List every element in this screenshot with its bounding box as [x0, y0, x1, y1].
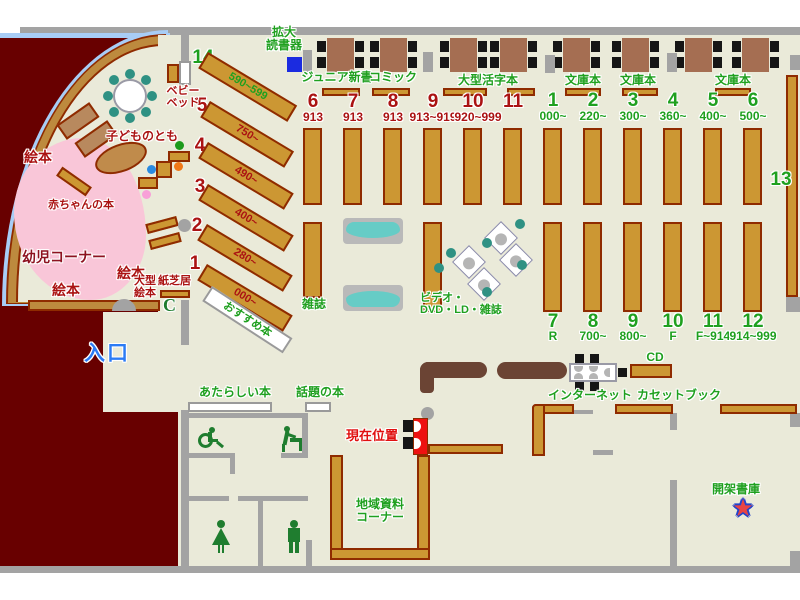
- stool: [434, 263, 444, 273]
- shelf-number: 1: [541, 91, 565, 111]
- shelf-number: 7: [341, 92, 365, 112]
- shelf-column: [543, 222, 562, 312]
- counter-leg: [420, 362, 434, 393]
- chair: [528, 57, 537, 68]
- chair: [618, 368, 627, 377]
- chair: [575, 354, 584, 363]
- wall-stacks-bottom: [670, 480, 677, 567]
- chair: [590, 354, 599, 363]
- shelf-column: [663, 128, 682, 205]
- shelf-number-13: 13: [764, 170, 798, 190]
- pillar: [178, 219, 191, 232]
- chair: [612, 41, 621, 52]
- local-shelf-left: [330, 455, 343, 560]
- partition: [667, 53, 677, 72]
- chair: [770, 57, 779, 68]
- av-label: ビデオ・ DVD・LD・雑誌: [420, 293, 506, 316]
- wall-right-c: [790, 413, 800, 427]
- seat: [604, 368, 610, 377]
- chair: [440, 57, 449, 68]
- chair: [490, 41, 499, 52]
- shelf-number: 8: [381, 92, 405, 112]
- chair: [675, 41, 684, 52]
- cd-label: CD: [640, 351, 670, 364]
- man-icon: [285, 520, 303, 554]
- magnifier-reader-label: 拡大 読書器: [258, 26, 310, 51]
- chair: [355, 57, 364, 68]
- shelf-range: 920~999: [450, 111, 506, 124]
- chair: [478, 41, 487, 52]
- chair: [317, 41, 326, 52]
- shelf-column: [663, 222, 682, 312]
- wall-av-room-b: [593, 450, 613, 455]
- wall-toilet-right-lower: [306, 540, 312, 567]
- play-step: [156, 161, 172, 178]
- chair: [440, 41, 449, 52]
- wall-toilet-top: [189, 413, 307, 418]
- shelf-number: 6: [301, 92, 325, 112]
- shelf-number: 9: [421, 92, 445, 112]
- magazine-label: 雑誌: [292, 298, 336, 311]
- reading-table: [685, 38, 712, 72]
- baby-changing-icon: [280, 426, 304, 452]
- reading-table: [380, 38, 407, 72]
- kids-chair: [103, 91, 113, 101]
- shelf-column: [623, 128, 642, 205]
- kids-chair: [141, 75, 151, 85]
- stacks-star-icon: ★: [728, 494, 758, 524]
- stool: [482, 238, 492, 248]
- shelf-column: [383, 128, 402, 205]
- chair: [317, 57, 326, 68]
- library-floor-map: 拡大 読書器 ジュニア新書 コミック 大型活字本 文庫本 文庫本 文庫本 6 7…: [0, 0, 800, 600]
- magnifier-reader-device: [287, 57, 302, 72]
- cushion-green: [175, 141, 184, 150]
- wall-toilet-low-a: [181, 496, 229, 501]
- wall-right-b: [786, 297, 800, 312]
- stool: [517, 260, 527, 270]
- chair: [713, 41, 722, 52]
- shelf-column: [503, 128, 522, 205]
- shelf-column: [543, 128, 562, 205]
- chair: [528, 41, 537, 52]
- reading-table: [500, 38, 527, 72]
- reading-table: [450, 38, 477, 72]
- kids-chair: [109, 75, 119, 85]
- topic-books-label: 話題の本: [288, 386, 352, 399]
- section-label-bunko-3: 文庫本: [688, 74, 778, 87]
- wall-toilet-jamb: [230, 458, 235, 474]
- shelf-column-magazine: [303, 222, 322, 298]
- shelf-column: [623, 222, 642, 312]
- shelf-number: 3: [621, 91, 645, 111]
- internet-label: インターネット: [548, 389, 632, 402]
- section-label-bunko-2: 文庫本: [593, 74, 683, 87]
- stool: [482, 287, 492, 297]
- shelf-number: 10: [461, 92, 485, 112]
- shelf-column: [703, 128, 722, 205]
- stool: [446, 248, 456, 258]
- reading-table: [563, 38, 590, 72]
- partition: [423, 52, 433, 72]
- section-label-comic: コミック: [348, 71, 438, 84]
- partition: [303, 50, 312, 72]
- chair: [478, 57, 487, 68]
- partition: [545, 55, 555, 73]
- shelf-number: 11: [501, 92, 525, 112]
- shelf-range: 914~999: [721, 330, 785, 343]
- ehon-label: 絵本: [24, 150, 64, 165]
- wall-right-a: [790, 55, 800, 70]
- local-shelf-right: [417, 455, 430, 560]
- ehon-label: 絵本: [52, 283, 92, 298]
- section-label-largeprint: 大型活字本: [443, 74, 533, 87]
- shelf-number: 6: [741, 91, 765, 111]
- new-books-shelf: [188, 402, 272, 412]
- shelf-column: [343, 128, 362, 205]
- cassette-label: カセットブック: [636, 389, 722, 402]
- baby-books-label: 赤ちゃんの本: [48, 200, 128, 212]
- cushion-orange: [174, 162, 183, 171]
- baby-bed-shelf: [167, 64, 179, 83]
- new-books-label: あたらしい本: [193, 386, 277, 399]
- shelf-column: [583, 222, 602, 312]
- wall-shelf: [615, 404, 673, 414]
- shelf-number: 5: [701, 91, 725, 111]
- woman-icon: [212, 520, 230, 554]
- chair: [370, 41, 379, 52]
- reading-table: [742, 38, 769, 72]
- wall-toilet-low-b: [238, 496, 308, 501]
- wall-bottom: [0, 566, 800, 573]
- sofa-cushion: [346, 222, 400, 238]
- chair: [650, 41, 659, 52]
- chair: [650, 57, 659, 68]
- kids-chair: [147, 91, 157, 101]
- shelf-number: 2: [581, 91, 605, 111]
- topic-books-shelf: [305, 402, 331, 412]
- reading-table: [327, 38, 354, 72]
- chair: [408, 41, 417, 52]
- entrance-label: 入口: [84, 343, 154, 365]
- chair: [591, 57, 600, 68]
- wall-left-bottom: [181, 410, 189, 567]
- reading-table: [622, 38, 649, 72]
- chair: [732, 41, 741, 52]
- seat: [574, 373, 583, 379]
- wall-toilet-divider: [258, 501, 263, 567]
- wall-toilet-mid-a: [181, 453, 235, 458]
- cushion-blue: [147, 165, 156, 174]
- ogata-ehon-label: 大型 絵本: [129, 276, 161, 299]
- chair: [732, 57, 741, 68]
- shelf-column: [703, 222, 722, 312]
- kids-chair: [125, 113, 135, 123]
- shelf-range: 500~: [725, 110, 781, 123]
- sofa-cushion: [346, 291, 400, 307]
- kids-chair: [109, 107, 119, 117]
- wheelchair-icon: [198, 427, 224, 451]
- chair: [713, 57, 722, 68]
- shelf-column: [583, 128, 602, 205]
- chair: [408, 57, 417, 68]
- wall-shelf: [720, 404, 797, 414]
- toddler-corner-label: 幼児コーナー: [22, 250, 114, 265]
- wall-av-room-a: [573, 410, 593, 414]
- wall-stacks-top: [670, 413, 677, 430]
- shelf-number: 4: [661, 91, 685, 111]
- shelf-column: [743, 128, 762, 205]
- chair: [490, 57, 499, 68]
- local-materials-label: 地域資料 コーナー: [344, 498, 416, 523]
- chair: [591, 41, 600, 52]
- cushion-pink: [142, 190, 151, 199]
- kids-chair: [125, 69, 135, 79]
- chair: [612, 57, 621, 68]
- current-location-label: 現在位置: [346, 429, 406, 443]
- baby-bed-label: ベビー ベッド: [162, 86, 204, 109]
- counter-desk: [497, 362, 567, 379]
- local-shelf-bottom: [330, 548, 430, 560]
- baby-bed: [179, 61, 191, 85]
- chair: [553, 41, 562, 52]
- shelf-column: [463, 128, 482, 205]
- kamishibai-label: 紙芝居: [158, 276, 200, 288]
- chair: [770, 41, 779, 52]
- wall-right-d: [790, 551, 800, 567]
- chair: [355, 41, 364, 52]
- kids-chair: [141, 107, 151, 117]
- wall-toilet-mid-b: [281, 453, 308, 458]
- cd-shelf: [630, 364, 672, 378]
- play-step: [138, 177, 158, 189]
- wall-shelf: [428, 444, 503, 454]
- kids-bottom-wall: [28, 300, 160, 311]
- kodomo-no-tomo-label: 子どものとも: [106, 130, 196, 143]
- shelf-column: [743, 222, 762, 312]
- seat: [589, 373, 598, 379]
- shelf-column: [423, 128, 442, 205]
- wall-shelf-leg: [532, 404, 545, 456]
- shelf-column: [303, 128, 322, 205]
- phone-icon: C: [163, 296, 183, 315]
- stool: [515, 219, 525, 229]
- chair: [370, 57, 379, 68]
